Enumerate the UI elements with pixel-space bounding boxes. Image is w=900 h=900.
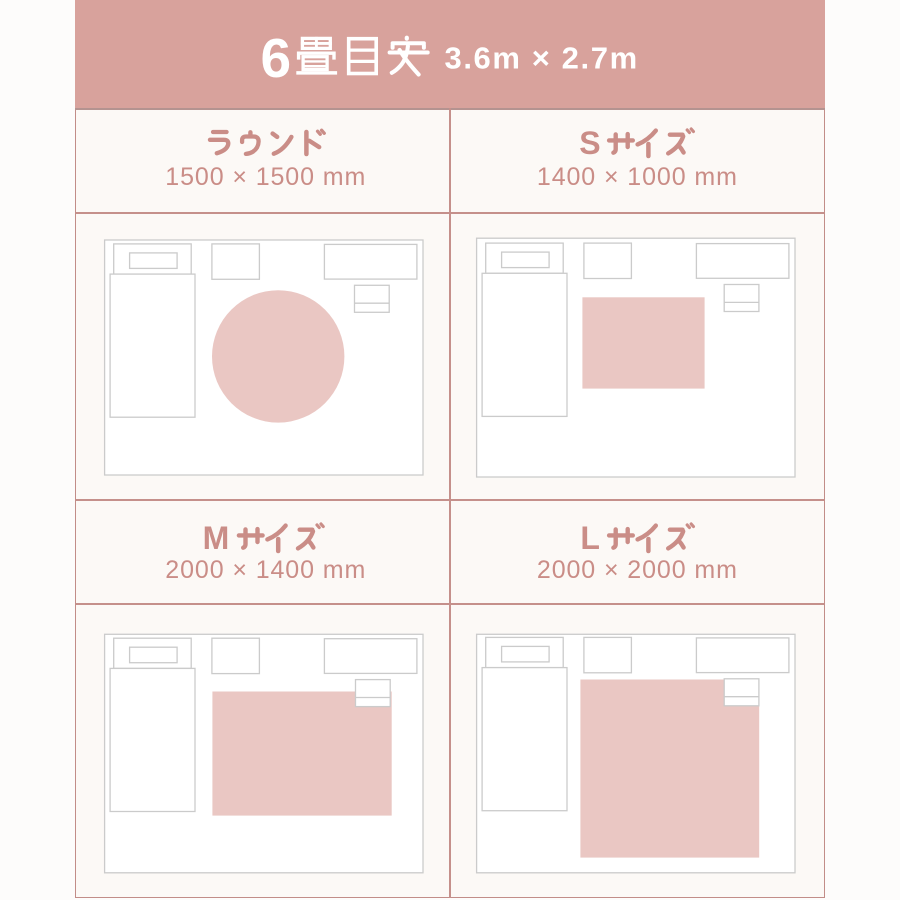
svg-text:6: 6 bbox=[261, 27, 292, 89]
svg-text:M: M bbox=[203, 520, 230, 555]
svg-text:S: S bbox=[579, 125, 600, 160]
svg-text:3.6m × 2.7m: 3.6m × 2.7m bbox=[445, 41, 639, 76]
svg-text:L: L bbox=[580, 520, 600, 555]
